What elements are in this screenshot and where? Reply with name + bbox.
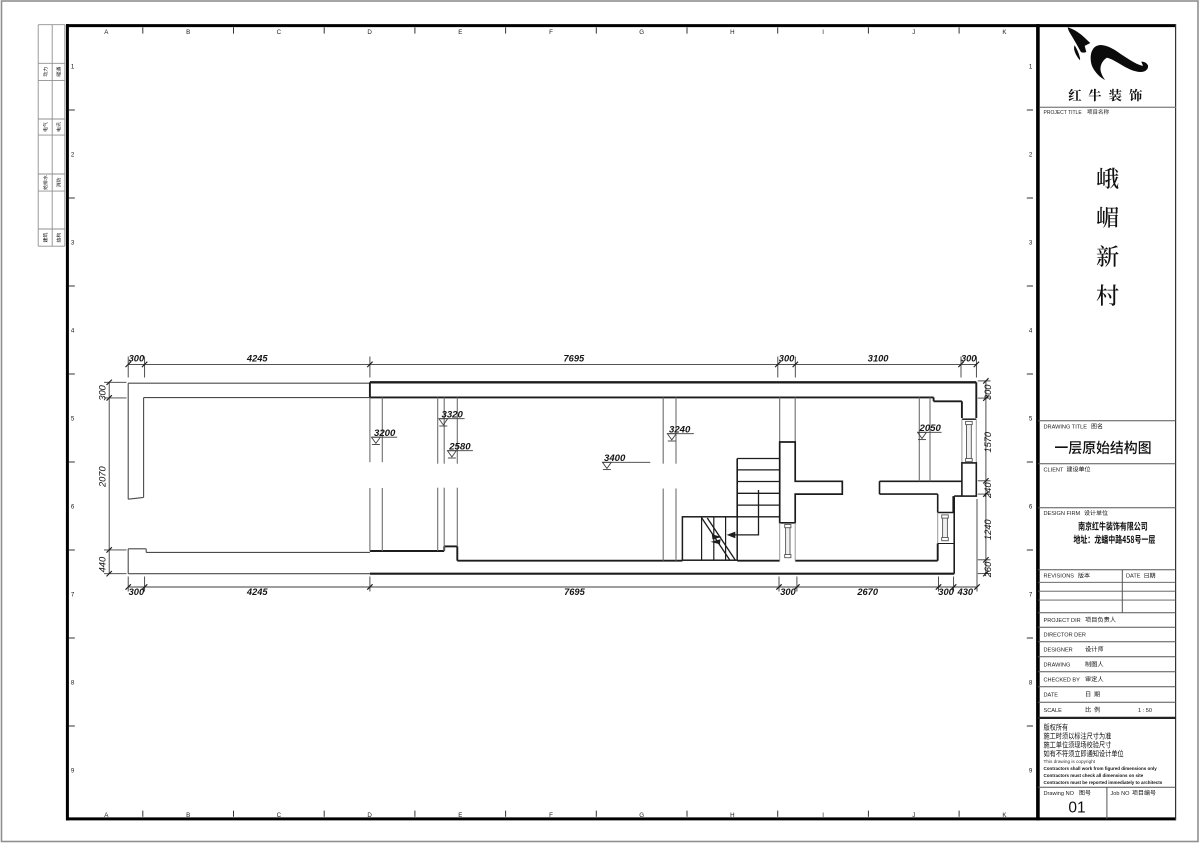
svg-text:PROJECT DIR: PROJECT DIR [1044, 618, 1081, 624]
svg-text:C: C [277, 29, 282, 36]
svg-text:3: 3 [71, 239, 75, 246]
svg-text:240: 240 [983, 482, 993, 499]
svg-text:300: 300 [129, 354, 145, 364]
svg-text:300: 300 [983, 384, 993, 400]
svg-text:C: C [277, 812, 282, 819]
svg-text:300: 300 [779, 354, 795, 364]
svg-text:PROJECT TITLE: PROJECT TITLE [1044, 110, 1083, 116]
svg-text:300: 300 [129, 587, 145, 597]
svg-text:3: 3 [1029, 239, 1033, 246]
svg-text:7695: 7695 [564, 354, 586, 364]
svg-text:9: 9 [1029, 767, 1033, 774]
svg-text:260: 260 [983, 561, 993, 578]
svg-text:J: J [912, 812, 915, 819]
svg-text:300: 300 [97, 384, 107, 400]
svg-text:This drawing is copyright: This drawing is copyright [1044, 759, 1096, 764]
svg-text:D: D [367, 29, 372, 36]
svg-text:5: 5 [1029, 415, 1033, 422]
svg-text:DESIGN FIRM: DESIGN FIRM [1044, 511, 1081, 517]
svg-text:2: 2 [1029, 151, 1033, 158]
svg-text:Contractors shall work from fi: Contractors shall work from figured dime… [1044, 766, 1158, 771]
svg-text:CHECKED BY: CHECKED BY [1044, 677, 1081, 683]
svg-text:1: 1 [71, 63, 75, 70]
svg-text:1570: 1570 [983, 431, 993, 453]
svg-text:Job NO: Job NO [1111, 791, 1131, 797]
svg-text:440: 440 [97, 556, 107, 572]
svg-text:8: 8 [1029, 679, 1033, 686]
svg-text:1 : 50: 1 : 50 [1138, 708, 1152, 714]
svg-text:CLIENT: CLIENT [1044, 467, 1064, 473]
svg-text:3100: 3100 [868, 354, 890, 364]
svg-text:6: 6 [71, 503, 75, 510]
svg-text:7: 7 [1029, 591, 1033, 598]
svg-text:J: J [912, 29, 915, 36]
svg-text:2670: 2670 [856, 587, 879, 597]
svg-text:Contractors must check all dim: Contractors must check all dimensions on… [1044, 773, 1144, 778]
svg-text:1240: 1240 [983, 519, 993, 541]
svg-text:E: E [458, 29, 462, 36]
svg-text:4245: 4245 [246, 354, 269, 364]
svg-text:300: 300 [938, 587, 954, 597]
svg-text:8: 8 [71, 679, 75, 686]
svg-text:G: G [639, 812, 644, 819]
svg-text:SCALE: SCALE [1044, 708, 1063, 714]
svg-text:9: 9 [71, 767, 75, 774]
svg-text:7695: 7695 [564, 587, 586, 597]
svg-text:F: F [549, 812, 553, 819]
svg-text:DESIGNER: DESIGNER [1044, 647, 1073, 653]
svg-text:300: 300 [961, 354, 977, 364]
svg-text:I: I [822, 812, 824, 819]
svg-text:430: 430 [957, 587, 974, 597]
svg-text:I: I [822, 29, 824, 36]
svg-text:B: B [186, 29, 190, 36]
svg-text:4: 4 [1029, 327, 1033, 334]
svg-text:6: 6 [1029, 503, 1033, 510]
svg-text:B: B [186, 812, 190, 819]
svg-text:2070: 2070 [97, 466, 107, 489]
svg-text:DRAWING TITLE: DRAWING TITLE [1044, 424, 1088, 430]
svg-text:REVISIONS: REVISIONS [1044, 574, 1075, 580]
svg-text:F: F [549, 29, 553, 36]
svg-text:Drawing NO: Drawing NO [1044, 791, 1075, 797]
svg-text:E: E [458, 812, 462, 819]
svg-text:DIRECTOR DER: DIRECTOR DER [1044, 632, 1086, 638]
svg-text:G: G [639, 29, 644, 36]
svg-text:7: 7 [71, 591, 75, 598]
svg-text:DATE: DATE [1044, 692, 1059, 698]
svg-text:1: 1 [1029, 63, 1033, 70]
svg-text:2: 2 [71, 151, 75, 158]
svg-text:300: 300 [780, 587, 796, 597]
svg-text:H: H [730, 29, 734, 36]
svg-text:4: 4 [71, 327, 75, 334]
svg-text:DATE: DATE [1126, 574, 1141, 580]
svg-text:5: 5 [71, 415, 75, 422]
svg-text:Contractors must be reported i: Contractors must be reported immediately… [1044, 780, 1163, 785]
svg-text:D: D [367, 812, 372, 819]
svg-text:4245: 4245 [246, 587, 269, 597]
svg-text:H: H [730, 812, 734, 819]
svg-text:01: 01 [1068, 799, 1085, 816]
svg-text:DRAWING: DRAWING [1044, 662, 1071, 668]
